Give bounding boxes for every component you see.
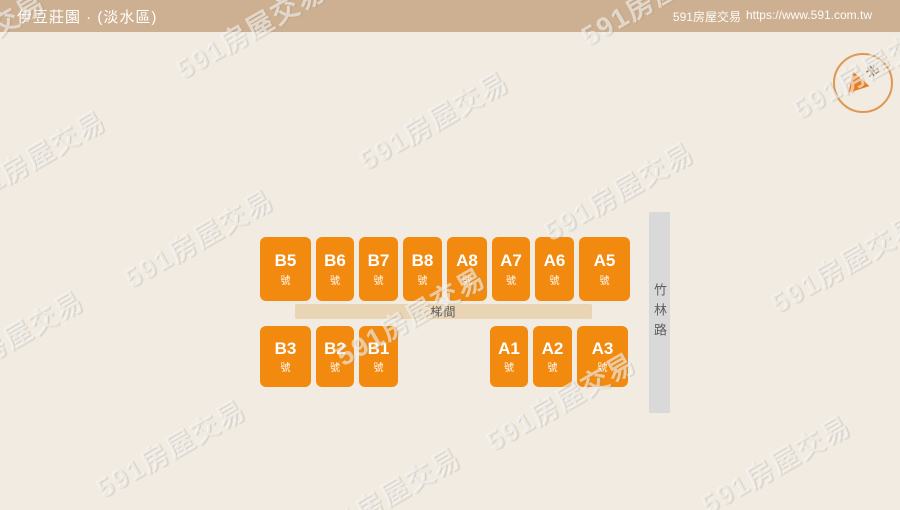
- unit-number: A7: [500, 251, 522, 271]
- unit-suffix: 號: [281, 359, 291, 374]
- unit-number: A3: [592, 339, 614, 359]
- unit-block-A2[interactable]: A2 號: [533, 326, 572, 387]
- unit-block-B1[interactable]: B1 號: [359, 326, 398, 387]
- unit-block-A5[interactable]: A5 號: [579, 237, 630, 301]
- unit-number: B3: [275, 339, 297, 359]
- unit-suffix: 號: [281, 272, 291, 287]
- unit-suffix: 號: [506, 272, 516, 287]
- unit-suffix: 號: [600, 272, 610, 287]
- unit-number: B1: [368, 339, 390, 359]
- watermark-text: 591房屋交易: [303, 436, 467, 510]
- watermark-text: 591房屋交易: [0, 279, 90, 396]
- unit-block-A3[interactable]: A3 號: [577, 326, 628, 387]
- compass-icon: 北: [833, 53, 893, 113]
- unit-suffix: 號: [598, 359, 608, 374]
- watermark-text: 591房屋交易: [351, 60, 515, 177]
- watermark-text: 591房屋交易: [763, 203, 900, 320]
- unit-suffix: 號: [462, 272, 472, 287]
- unit-block-A8[interactable]: A8 號: [447, 237, 487, 301]
- unit-number: A5: [594, 251, 616, 271]
- unit-number: B6: [324, 251, 346, 271]
- unit-number: A8: [456, 251, 478, 271]
- unit-number: B7: [368, 251, 390, 271]
- unit-block-B3[interactable]: B3 號: [260, 326, 311, 387]
- unit-block-B8[interactable]: B8 號: [403, 237, 442, 301]
- unit-number: A6: [544, 251, 566, 271]
- unit-suffix: 號: [330, 272, 340, 287]
- watermark-text: 591房屋交易: [0, 99, 112, 216]
- unit-suffix: 號: [504, 359, 514, 374]
- unit-block-B6[interactable]: B6 號: [316, 237, 354, 301]
- unit-number: B8: [412, 251, 434, 271]
- stairwell-bar: 梯間: [295, 304, 592, 319]
- road-label: 竹林路: [650, 283, 669, 343]
- unit-number: B2: [324, 339, 346, 359]
- unit-number: A1: [498, 339, 520, 359]
- watermark-text: 591房屋交易: [116, 178, 280, 295]
- unit-suffix: 號: [548, 359, 558, 374]
- unit-block-B2[interactable]: B2 號: [316, 326, 354, 387]
- unit-row-bottom-right: A1 號 A2 號 A3 號: [490, 326, 628, 387]
- unit-block-A6[interactable]: A6 號: [535, 237, 574, 301]
- road-strip: 竹林路: [649, 212, 670, 413]
- site-name: 591房屋交易: [673, 8, 741, 25]
- unit-suffix: 號: [374, 272, 384, 287]
- watermark-text: 591房屋交易: [88, 388, 252, 505]
- unit-block-B5[interactable]: B5 號: [260, 237, 311, 301]
- unit-row-bottom-left: B3 號 B2 號 B1 號: [260, 326, 398, 387]
- unit-suffix: 號: [330, 359, 340, 374]
- unit-suffix: 號: [550, 272, 560, 287]
- stairwell-label: 梯間: [430, 303, 456, 320]
- page-title: 伊豆莊園 · (淡水區): [17, 6, 157, 27]
- unit-row-top: B5 號 B6 號 B7 號 B8 號 A8 號 A7 號 A6 號 A5 號: [260, 237, 630, 301]
- watermark-text: 591房屋交易: [536, 131, 700, 248]
- site-plan-page: 伊豆莊園 · (淡水區) 591房屋交易 https://www.591.com…: [0, 0, 900, 510]
- site-url: https://www.591.com.tw: [746, 8, 872, 25]
- unit-suffix: 號: [418, 272, 428, 287]
- watermark-text: 591房屋交易: [693, 404, 857, 510]
- unit-number: A2: [542, 339, 564, 359]
- site-credit: 591房屋交易 https://www.591.com.tw: [673, 8, 872, 25]
- unit-suffix: 號: [374, 359, 384, 374]
- unit-block-B7[interactable]: B7 號: [359, 237, 398, 301]
- unit-number: B5: [275, 251, 297, 271]
- unit-block-A7[interactable]: A7 號: [492, 237, 530, 301]
- header-bar: 伊豆莊園 · (淡水區) 591房屋交易 https://www.591.com…: [0, 0, 900, 32]
- unit-block-A1[interactable]: A1 號: [490, 326, 528, 387]
